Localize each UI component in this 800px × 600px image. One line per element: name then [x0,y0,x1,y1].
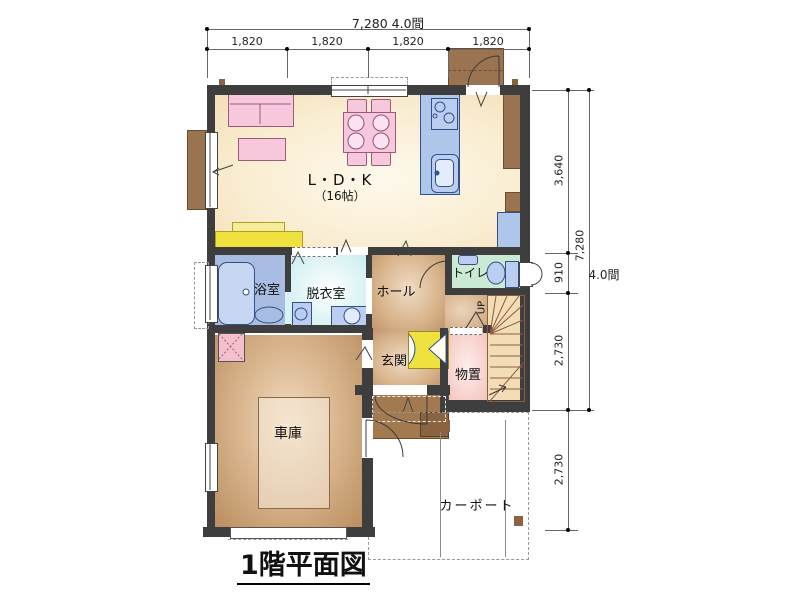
ldk-size-label: （16帖） [290,187,390,204]
dim-dot [587,408,591,412]
floorplan-linework [0,0,800,600]
dim-top-seg-3: 1,820 [378,35,438,48]
dim-right-total: 7,280 [574,221,587,271]
dim-dot [527,27,531,31]
dressing-label: 脱衣室 [298,283,354,302]
dim-line-right-inner [568,90,569,530]
dim-dot [285,47,289,51]
bath-label: 浴室 [247,279,287,298]
dim-dot [205,27,209,31]
dim-dot [446,47,450,51]
dim-dot [205,47,209,51]
garage-label: 車庫 [258,423,318,443]
dim-guide [448,49,449,78]
dim-dot [366,47,370,51]
dim-dot [587,88,591,92]
dim-guide [287,49,288,78]
dim-right-mid: 910 [553,248,566,298]
dim-right-lower2: 2,730 [553,445,566,495]
stairs-up-label: UP [477,294,488,322]
storage-label: 物置 [448,364,488,383]
dim-dot [566,408,570,412]
dim-right-total-ken: 4.0間 [582,266,626,283]
dim-guide [545,530,578,531]
dim-dot [566,528,570,532]
dim-line-right-outer [589,90,590,410]
toilet-label: トイレ [450,264,490,281]
dim-top-seg-1: 1,820 [217,35,277,48]
dim-right-lower1: 2,730 [553,326,566,376]
dim-dot [566,251,570,255]
dim-dot [527,47,531,51]
floor-plan-canvas: L・D・K （16帖） 浴室 脱衣室 ホール トイレ 玄関 物置 車庫 カーポー… [0,0,800,600]
dim-guide [368,49,369,78]
dim-top-seg-2: 1,820 [297,35,357,48]
dim-top-seg-4: 1,820 [458,35,518,48]
dim-guide [207,29,208,78]
dim-right-upper: 3,640 [553,146,566,196]
entrance-label: 玄関 [369,350,419,369]
dim-dot [566,88,570,92]
carport-label: カーポート [427,495,527,514]
dim-dot [566,291,570,295]
dim-guide [529,29,530,78]
dim-top-total: 7,280 4.0間 [288,13,488,32]
hall-label: ホール [371,281,421,300]
plan-title: 1階平面図 [237,543,370,585]
dim-guide [532,410,594,411]
dim-guide [532,90,594,91]
